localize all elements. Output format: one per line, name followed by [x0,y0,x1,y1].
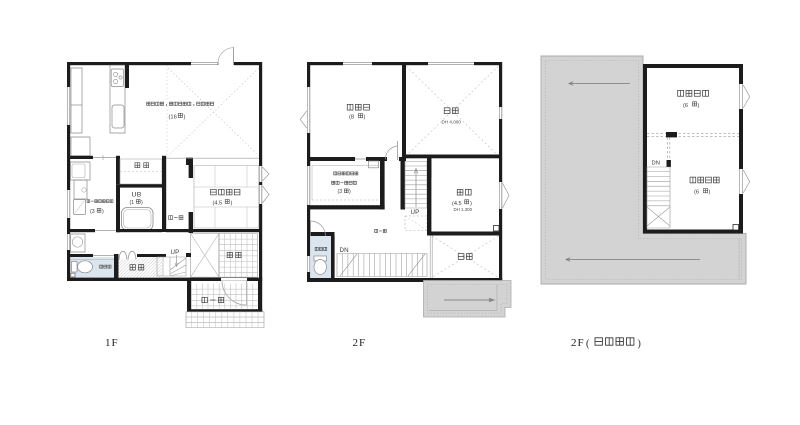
svg-text:(3: (3 [338,189,343,195]
svg-text:): ) [709,190,711,196]
svg-text:UP: UP [171,249,180,256]
svg-text:): ) [231,201,233,207]
svg-text:2F: 2F [353,337,367,349]
svg-text:(: ( [586,339,590,350]
svg-text:(16: (16 [169,114,177,120]
svg-text:(6: (6 [694,190,699,196]
svg-text:(1: (1 [130,200,135,206]
svg-text:DN: DN [652,161,661,167]
svg-text:): ) [698,103,700,109]
svg-text:DN: DN [340,247,349,254]
svg-text:(4.5: (4.5 [452,201,462,207]
svg-text:DH 4.000: DH 4.000 [442,119,462,124]
svg-text:): ) [349,189,351,195]
svg-text:(4.5: (4.5 [213,201,223,207]
svg-text:2F: 2F [571,337,585,349]
svg-text:): ) [141,200,143,206]
svg-text:): ) [102,209,104,215]
svg-text:(6: (6 [683,103,688,109]
svg-text:DH 1.300: DH 1.300 [454,207,473,212]
svg-text:1F: 1F [105,337,119,349]
svg-text:(8: (8 [349,115,354,121]
svg-text:): ) [638,339,641,350]
svg-text:): ) [364,115,366,121]
svg-text:): ) [470,201,472,207]
svg-text:UP: UP [411,209,420,216]
svg-text:): ) [184,114,186,120]
svg-text:(3: (3 [90,209,95,215]
svg-text:UB: UB [132,192,142,199]
